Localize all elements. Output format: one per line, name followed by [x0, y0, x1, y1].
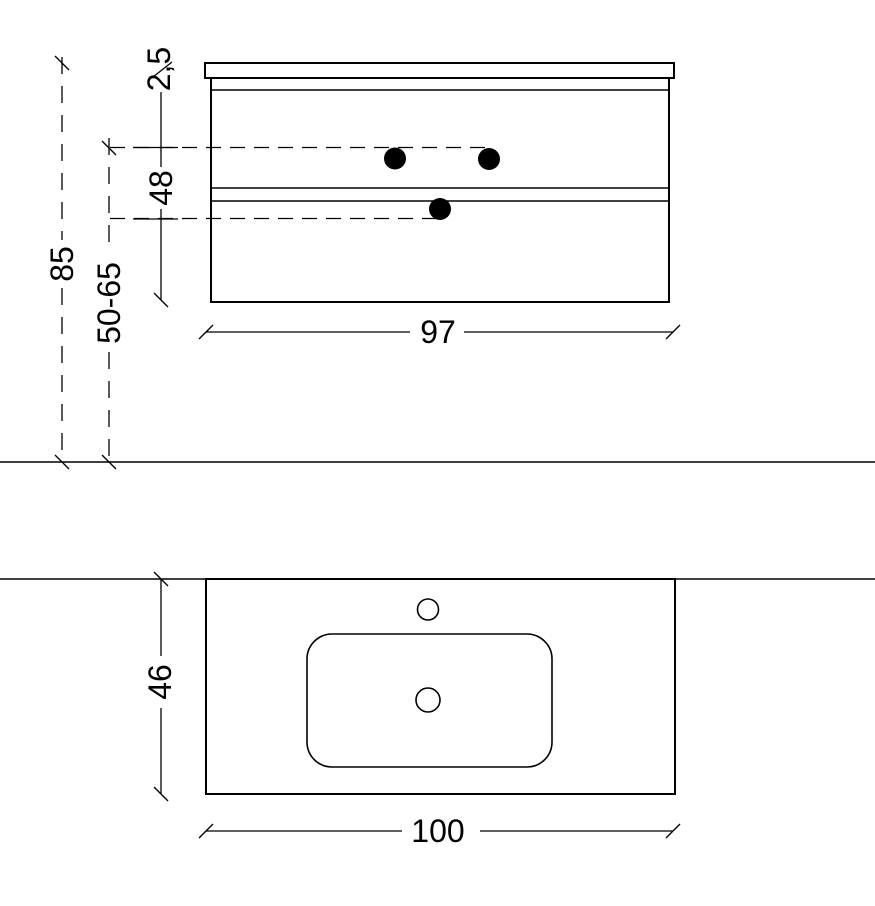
countertop-front: [205, 63, 674, 78]
basin-outline: [307, 634, 552, 767]
dimension-depth: 46: [142, 572, 178, 801]
technical-drawing-page: 2,5 48 85 50-65: [0, 0, 875, 906]
dimension-top-thickness: 2,5: [141, 47, 177, 148]
dim-46-label: 46: [142, 664, 178, 700]
mounting-dot-right: [478, 148, 500, 170]
cabinet-body: [211, 78, 669, 302]
mounting-dot-left: [384, 148, 406, 170]
front-view: 2,5 48 85 50-65: [44, 47, 680, 469]
vanity-dimension-drawing: 2,5 48 85 50-65: [0, 0, 875, 906]
dim-100-label: 100: [411, 813, 464, 849]
drain-hole: [416, 688, 440, 712]
dim-97-label: 97: [420, 314, 456, 350]
plan-view: 46 100: [142, 572, 680, 849]
dim-50-65-label: 50-65: [91, 262, 127, 344]
dimension-mounting-height: 50-65: [91, 138, 127, 469]
countertop-plan: [206, 579, 675, 794]
dimension-cabinet-width: 97: [199, 314, 680, 350]
dimension-total-height: 85: [44, 56, 80, 469]
dim-2-5-label: 2,5: [141, 47, 177, 91]
dim-48-label: 48: [143, 170, 179, 206]
dimension-plan-width: 100: [199, 813, 680, 849]
dimension-carcass-height: 48: [143, 148, 179, 308]
mounting-dot-lower: [429, 198, 451, 220]
faucet-hole: [418, 599, 439, 620]
dim-85-label: 85: [44, 246, 80, 282]
